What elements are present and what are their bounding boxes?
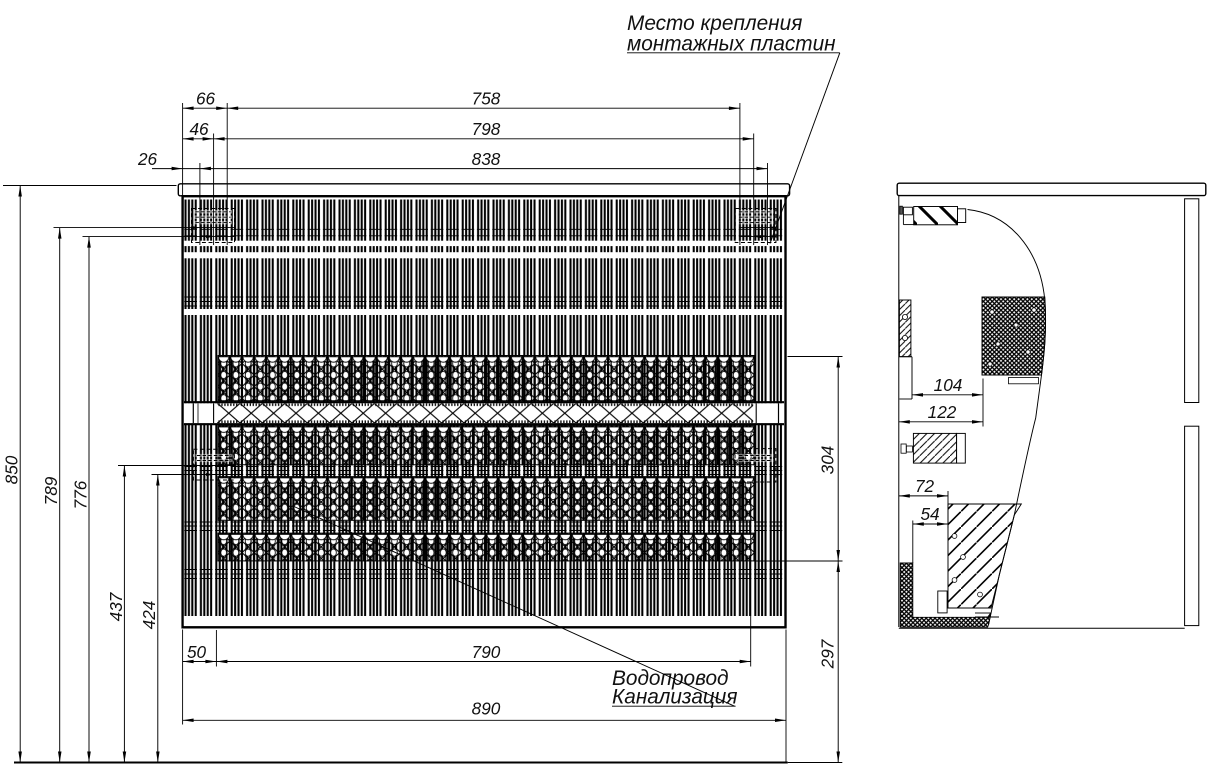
- svg-text:122: 122: [928, 402, 957, 422]
- svg-text:Канализация: Канализация: [612, 685, 737, 708]
- svg-text:758: 758: [472, 88, 501, 108]
- svg-text:789: 789: [41, 476, 61, 505]
- svg-text:437: 437: [106, 591, 126, 621]
- svg-text:66: 66: [196, 88, 216, 108]
- svg-text:776: 776: [70, 480, 90, 509]
- svg-text:72: 72: [915, 476, 935, 496]
- svg-text:790: 790: [472, 642, 501, 662]
- svg-text:монтажных пластин: монтажных пластин: [627, 32, 836, 55]
- svg-text:104: 104: [934, 375, 963, 395]
- svg-text:54: 54: [920, 504, 939, 524]
- svg-text:304: 304: [818, 446, 838, 475]
- svg-text:890: 890: [472, 699, 501, 719]
- svg-text:297: 297: [818, 638, 838, 669]
- svg-text:26: 26: [137, 149, 158, 169]
- svg-text:838: 838: [472, 149, 501, 169]
- svg-text:850: 850: [2, 455, 22, 484]
- svg-text:46: 46: [189, 119, 209, 139]
- svg-text:424: 424: [139, 601, 159, 630]
- svg-text:50: 50: [187, 642, 207, 662]
- svg-text:798: 798: [472, 119, 501, 139]
